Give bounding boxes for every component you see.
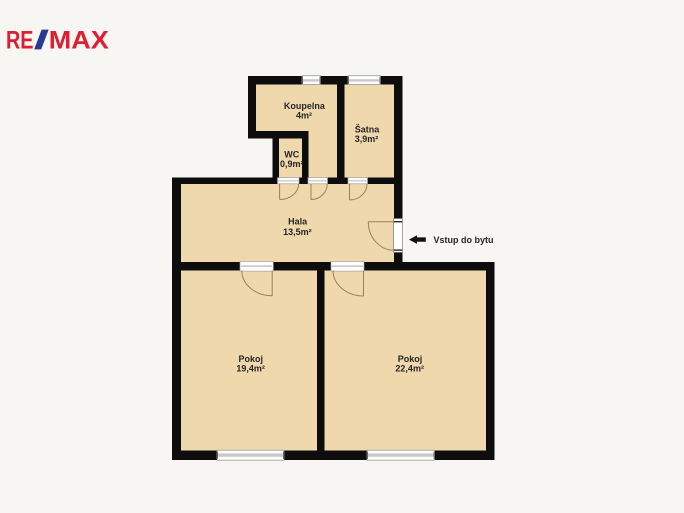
- svg-text:MAX: MAX: [49, 27, 109, 55]
- svg-text:13,5m²: 13,5m²: [283, 227, 312, 237]
- svg-text:Šatna: Šatna: [355, 123, 381, 134]
- svg-text:3,9m²: 3,9m²: [355, 134, 379, 144]
- svg-text:Pokoj: Pokoj: [398, 354, 423, 364]
- svg-text:0,9m²: 0,9m²: [280, 159, 304, 169]
- svg-text:RE: RE: [6, 27, 34, 55]
- svg-text:WC: WC: [284, 150, 299, 160]
- svg-text:4m²: 4m²: [296, 111, 312, 121]
- svg-text:19,4m²: 19,4m²: [236, 364, 265, 374]
- svg-text:Pokoj: Pokoj: [239, 354, 264, 364]
- svg-text:Vstup do bytu: Vstup do bytu: [434, 235, 494, 245]
- svg-text:Hala: Hala: [288, 217, 308, 227]
- svg-text:22,4m²: 22,4m²: [395, 364, 424, 374]
